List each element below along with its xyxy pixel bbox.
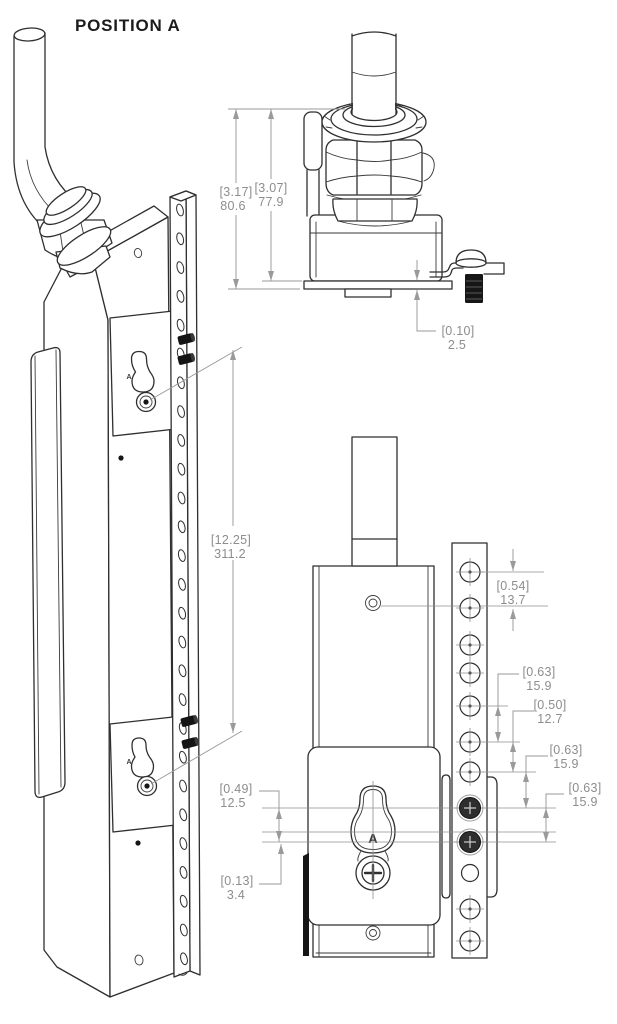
dim-mm-label: 12.5 (220, 796, 246, 810)
drawing-title: POSITION A (75, 16, 181, 35)
drawing-page: POSITION A A (0, 0, 617, 1024)
dim-keyhole-offset: [0.49] 12.5 (219, 782, 279, 842)
dim-mm-label: 80.6 (220, 199, 246, 213)
dim-inch-label: [0.63] (522, 665, 555, 679)
gasket-strip (303, 853, 309, 956)
dim-inch-label: [0.13] (220, 874, 253, 888)
dim-body-height: [3.07] 77.9 (254, 109, 302, 281)
mount-bar (442, 775, 450, 898)
dim-center-offset: [0.13] 3.4 (220, 844, 281, 902)
dim-hole-pitch-d: [0.63] 15.9 (546, 781, 602, 842)
dim-inch-label: [0.49] (219, 782, 252, 796)
dim-mm-label: 12.7 (537, 712, 563, 726)
dim-inch-label: [0.63] (568, 781, 601, 795)
dim-inch-label: [0.50] (533, 698, 566, 712)
dim-mm-label: 15.9 (553, 757, 579, 771)
front-keyhole-plate: A (303, 747, 440, 956)
front-pole (352, 437, 397, 566)
isometric-assembly-view: A A (14, 27, 251, 997)
dim-inch-label: [0.10] (441, 324, 474, 338)
pan-head-screw (456, 250, 486, 267)
base-plate (304, 281, 452, 297)
technical-drawing: POSITION A A (0, 0, 617, 1024)
upper-keyhole-screw (137, 393, 156, 412)
dim-mm-label: 13.7 (500, 593, 526, 607)
rack-rail-iso (170, 191, 200, 977)
dim-mm-label: 77.9 (258, 195, 284, 209)
antenna-pole (352, 32, 396, 114)
upper-set-screw (118, 455, 123, 460)
lower-set-screw (135, 840, 140, 845)
dim-mm-label: 15.9 (526, 679, 552, 693)
dim-inch-label: [0.54] (496, 579, 529, 593)
lower-keyhole-screw (138, 777, 157, 796)
front-detail-view: A (219, 437, 601, 958)
dim-hole-pitch-top: [0.54] 13.7 (496, 549, 529, 631)
hex-gland-nut (326, 140, 422, 226)
dim-inch-label: [12.25] (211, 533, 251, 547)
mount-body (310, 215, 442, 281)
upper-keyhole-plate: A (110, 311, 176, 436)
top-detail-view: [3.17] 80.6 [3.07] 77.9 [0.10] 2.5 (219, 32, 504, 352)
lower-keyhole-plate: A (110, 717, 176, 832)
bracket-ear-tab (304, 112, 322, 216)
side-flange (487, 777, 497, 897)
dim-inch-label: [0.63] (549, 743, 582, 757)
dim-mm-label: 3.4 (227, 888, 245, 902)
iso-upper-position-marker: A (126, 374, 131, 381)
dim-inch-label: [3.07] (254, 181, 287, 195)
dim-mm-label: 15.9 (572, 795, 598, 809)
spring-clip (423, 153, 434, 181)
dim-inch-label: [3.17] (219, 185, 252, 199)
side-channel (31, 348, 65, 798)
dim-mm-label: 311.2 (214, 547, 246, 561)
iso-lower-position-marker: A (126, 759, 131, 766)
threaded-screw (465, 274, 483, 303)
dim-mm-label: 2.5 (448, 338, 466, 352)
